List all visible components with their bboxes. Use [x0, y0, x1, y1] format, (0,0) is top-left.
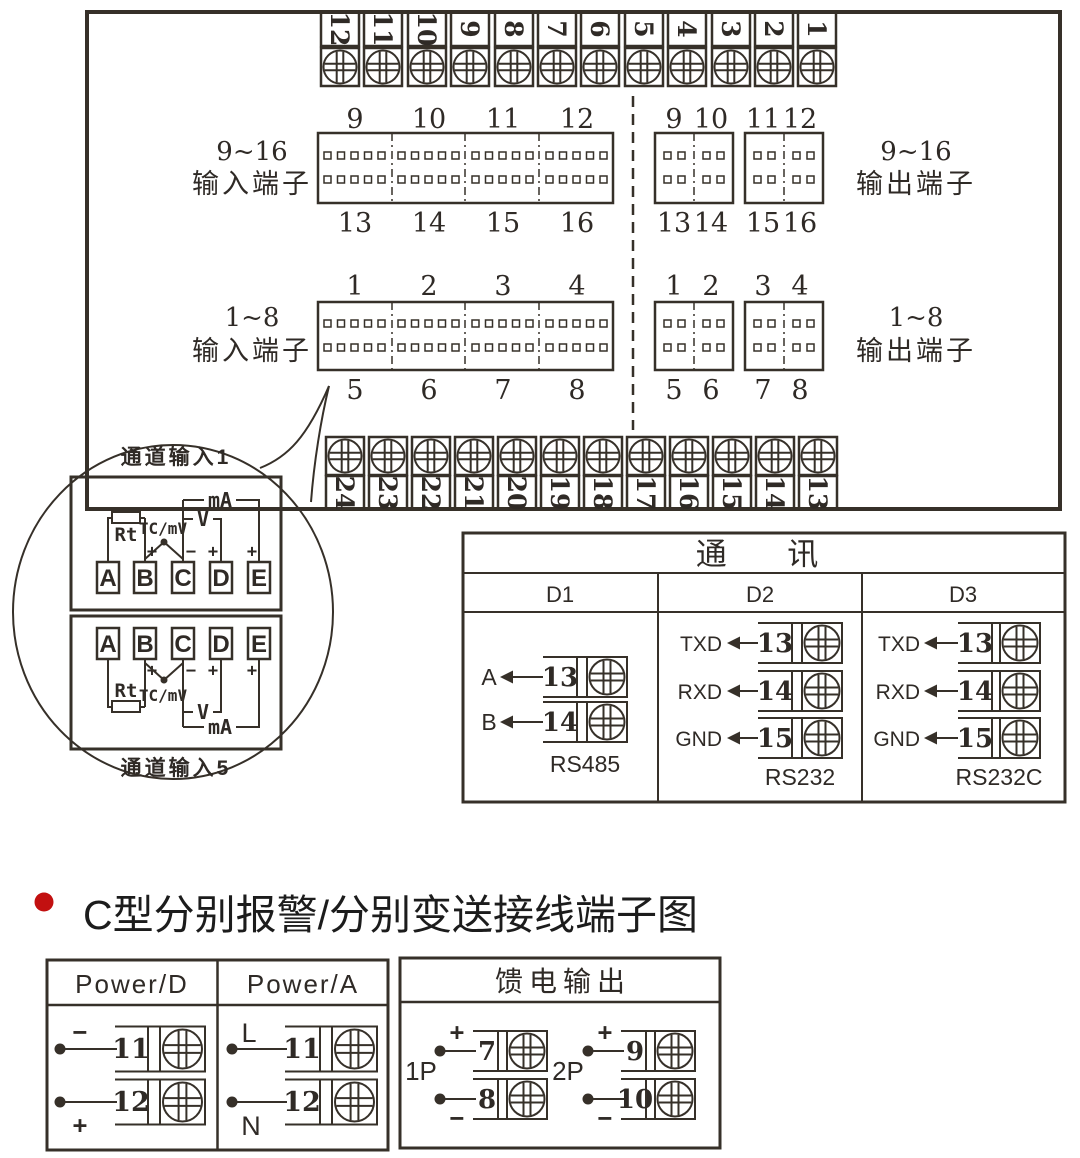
left-arrow-icon [500, 671, 513, 684]
screw-box [802, 671, 842, 711]
left-arrow-icon [727, 685, 740, 698]
signal-label: GND [675, 728, 722, 751]
screw-terminal: 9 [451, 12, 489, 86]
screw-head-icon [163, 1083, 202, 1122]
column-header: D2 [746, 582, 774, 607]
terminal-number: 8 [499, 20, 528, 37]
screw-head-icon [715, 51, 748, 84]
terminal-number: 18 [588, 476, 617, 511]
screw-head-icon [324, 51, 357, 84]
polarity-sign: + [208, 661, 218, 681]
wiring-label: mA [208, 715, 232, 739]
power-column-a: L 11 N 12 [227, 1018, 378, 1141]
screw-head-icon [805, 626, 840, 661]
screw-head-icon [1003, 674, 1038, 709]
screw-terminal: 8 [495, 12, 533, 86]
block-label-type: 输入端子 [192, 336, 312, 366]
power-row: + 12 [55, 1080, 206, 1140]
block-number: 11 [746, 104, 780, 135]
terminal-number: 2 [759, 20, 788, 37]
wiring-diagram: 12 11 10 9 8 7 6 5 4 3 2 1 9~16 输入端子 9~1… [0, 0, 1080, 1158]
channel-title: 通道输入1 [121, 445, 232, 469]
power-row: L 11 [227, 1018, 378, 1072]
terminal-number: 16 [674, 476, 703, 511]
terminal-letter: A [99, 631, 116, 658]
comm-column-d3: TXD 13 RXD 14 GND 15 [873, 623, 1042, 790]
terminal-number: 5 [629, 20, 658, 37]
polarity-sign: + [247, 542, 257, 562]
screw-head-icon [335, 1030, 374, 1069]
screw-box [160, 1080, 205, 1125]
block-label-range: 9~16 [880, 137, 951, 167]
screw-head-icon [458, 440, 491, 473]
signal-label: TXD [878, 633, 920, 656]
screw-head-icon [758, 51, 791, 84]
power-row: N 12 [227, 1080, 378, 1142]
screw-head-icon [630, 440, 663, 473]
comm-row: RXD 14 [678, 671, 842, 711]
block-number: 11 [486, 104, 520, 135]
terminal-number: 14 [957, 677, 993, 707]
screw-box [507, 1031, 547, 1071]
screw-box [655, 1031, 695, 1071]
terminal-number: 9 [626, 1037, 644, 1067]
table-title: 馈电输出 [495, 966, 631, 997]
comm-row: TXD 13 [878, 623, 1040, 663]
channel-title: 通道输入5 [121, 756, 232, 780]
terminal-number: 13 [803, 476, 832, 511]
screw-box [507, 1079, 547, 1119]
terminal-number: 13 [757, 629, 793, 659]
terminal-letter: E [251, 565, 267, 592]
feed-row: + 9 [583, 1018, 696, 1071]
block-number: 4 [568, 271, 585, 302]
feed-group-1p: 1P + 7 − 8 [405, 1018, 547, 1132]
comm-row: RXD 14 [876, 671, 1040, 711]
terminal-letter: E [251, 631, 267, 658]
page: 12 11 10 9 8 7 6 5 4 3 2 1 9~16 输入端子 9~1… [0, 0, 1080, 1158]
screw-head-icon [802, 440, 835, 473]
polarity-sign: − [186, 661, 196, 681]
screw-terminal: 4 [668, 12, 706, 86]
input-block-1-8: 1 2 3 4 5 6 7 8 [318, 271, 613, 406]
terminal-number: 1 [802, 20, 831, 37]
feed-group-2p: 2P + 9 − 10 [552, 1018, 695, 1132]
screw-terminal: 11 [364, 12, 402, 86]
block-number: 3 [754, 271, 771, 302]
polarity-sign: − [186, 542, 196, 562]
screw-head-icon [590, 660, 625, 695]
screw-terminal: 23 [369, 437, 407, 510]
signal-label: A [481, 664, 497, 690]
screw-terminal: 14 [756, 437, 794, 510]
terminal-number: 4 [672, 20, 701, 37]
block-number: 14 [694, 208, 728, 239]
screw-head-icon [335, 1083, 374, 1122]
screw-head-icon [716, 440, 749, 473]
block-number: 15 [746, 208, 780, 239]
screw-head-icon [658, 1082, 693, 1117]
screw-box [802, 623, 842, 663]
terminal-letter: C [174, 631, 191, 658]
screw-terminal: 15 [713, 437, 751, 510]
block-number: 12 [560, 104, 594, 135]
labels: 9~16 输入端子 9~16 输出端子 1~8 输入端子 1~8 输出端子 [192, 137, 976, 366]
power-row: − 11 [55, 1018, 206, 1072]
terminal-letter: C [174, 565, 191, 592]
screw-terminal: 10 [408, 12, 446, 86]
terminal-number: 13 [957, 629, 993, 659]
block-number: 2 [702, 271, 719, 302]
left-arrow-icon [924, 685, 937, 698]
screw-head-icon [584, 51, 617, 84]
screw-terminal: 12 [321, 12, 359, 86]
comm-row: GND 15 [873, 718, 1040, 758]
group-label: 1P [405, 1056, 437, 1086]
block-number: 3 [494, 271, 511, 302]
block-number: 8 [791, 375, 808, 406]
block-number: 5 [346, 375, 363, 406]
feed-output-table: 馈电输出 1P + 7 − 8 2P + [400, 958, 720, 1148]
resistor [112, 701, 140, 712]
terminal-number: 15 [757, 724, 793, 754]
screw-box [332, 1027, 377, 1072]
resistor [112, 512, 140, 523]
screw-head-icon [454, 51, 487, 84]
screw-box [802, 718, 842, 758]
terminal-number: 19 [545, 476, 574, 511]
terminal-number: 20 [502, 476, 531, 511]
block-number: 9 [346, 104, 363, 135]
block-label-range: 1~8 [889, 303, 944, 333]
left-arrow-icon [727, 732, 740, 745]
block-number: 14 [412, 208, 446, 239]
screw-terminal: 3 [712, 12, 750, 86]
signal-label: RXD [678, 681, 722, 704]
polarity-sign: − [598, 1104, 612, 1132]
terminal-number: 6 [585, 20, 614, 37]
screw-terminal: 6 [581, 12, 619, 86]
polarity-sign: − [73, 1018, 87, 1046]
polarity-sign: L [241, 1018, 256, 1048]
screw-head-icon [510, 1034, 545, 1069]
callout-balloon: 通道输入1 Rt TC/mV V mA + − + + A B C D E A [13, 386, 333, 780]
screw-box [1000, 671, 1040, 711]
screw-head-icon [510, 1082, 545, 1117]
polarity-sign: + [147, 661, 157, 681]
balloon-circle [13, 445, 333, 779]
terminal-number: 15 [957, 724, 993, 754]
screw-box [587, 702, 627, 742]
signal-label: RXD [876, 681, 920, 704]
terminal-number: 14 [542, 708, 578, 738]
block-label-range: 1~8 [225, 303, 280, 333]
screw-box [1000, 623, 1040, 663]
screw-terminal: 21 [455, 437, 493, 510]
left-arrow-icon [924, 732, 937, 745]
section-heading: C型分别报警/分别变送接线端子图 [35, 892, 699, 938]
junction-dot [161, 539, 168, 546]
terminal-letter: B [136, 631, 153, 658]
terminal-number: 7 [478, 1037, 496, 1067]
screw-terminal: 20 [498, 437, 536, 510]
screw-terminal: 19 [541, 437, 579, 510]
comm-row: TXD 13 [680, 623, 842, 663]
column-header: D1 [546, 582, 574, 607]
terminal-number: 13 [542, 663, 578, 693]
comm-column-d2: TXD 13 RXD 14 GND 15 [675, 623, 842, 790]
block-number: 16 [783, 208, 817, 239]
standard-label: RS232C [956, 764, 1043, 790]
block-number: 10 [412, 104, 446, 135]
terminal-number: 12 [325, 12, 354, 47]
terminal-number: 10 [412, 12, 441, 47]
block-number: 5 [665, 375, 682, 406]
screw-head-icon [541, 51, 574, 84]
terminal-number: 14 [760, 476, 789, 511]
polarity-sign: + [73, 1111, 87, 1139]
screw-terminal: 18 [584, 437, 622, 510]
screw-head-icon [411, 51, 444, 84]
channel-input-1-diagram: 通道输入1 Rt TC/mV V mA + − + + A B C D E [71, 445, 281, 610]
comm-row: A 13 [481, 657, 627, 697]
comm-row: GND 15 [675, 718, 842, 758]
block-label-range: 9~16 [216, 137, 287, 167]
terminal-letter: A [99, 565, 116, 592]
terminal-number: 11 [368, 12, 397, 47]
signal-label: TXD [680, 633, 722, 656]
screw-terminal: 16 [670, 437, 708, 510]
wiring-label: TC/mV [139, 519, 188, 538]
polarity-sign: − [450, 1104, 464, 1132]
block-number: 6 [702, 375, 719, 406]
column-header: D3 [949, 582, 977, 607]
block-number: 7 [754, 375, 771, 406]
block-number: 1 [346, 271, 363, 302]
screw-head-icon [415, 440, 448, 473]
block-number: 4 [791, 271, 808, 302]
screw-head-icon [590, 705, 625, 740]
screw-head-icon [329, 440, 362, 473]
screw-terminal: 2 [755, 12, 793, 86]
standard-label: RS232 [765, 764, 835, 790]
output-block-1-8: 1 2 3 4 5 6 7 8 [655, 271, 823, 406]
terminal-panel: 12 11 10 9 8 7 6 5 4 3 2 1 9~16 输入端子 9~1… [87, 12, 1060, 511]
power-table: Power/D Power/A − 11 + 12 L [47, 960, 388, 1150]
terminal-number: 7 [542, 20, 571, 37]
polarity-sign: N [241, 1111, 261, 1141]
screw-head-icon [544, 440, 577, 473]
block-number: 15 [486, 208, 520, 239]
screw-terminal: 22 [412, 437, 450, 510]
input-block-9-16: 9 10 11 12 13 14 15 16 [318, 104, 613, 239]
screw-head-icon [805, 721, 840, 756]
channel-input-5-diagram: A B C D E + − + + Rt TC/mV V mA 通道输入5 [71, 616, 281, 780]
terminal-number: 10 [617, 1085, 653, 1115]
screw-head-icon [587, 440, 620, 473]
polarity-sign: + [208, 542, 218, 562]
screw-head-icon [671, 51, 704, 84]
terminal-number: 23 [373, 476, 402, 511]
terminal-letter: D [212, 565, 229, 592]
block-number: 16 [560, 208, 594, 239]
terminal-number: 8 [478, 1085, 496, 1115]
terminal-number: 22 [416, 476, 445, 511]
table-title: 通 讯 [696, 537, 845, 572]
left-arrow-icon [500, 716, 513, 729]
terminal-number: 14 [757, 677, 793, 707]
output-block-9-16: 9 10 11 12 13 14 15 16 [655, 104, 823, 239]
block-number: 6 [420, 375, 437, 406]
screw-terminal: 13 [799, 437, 837, 510]
wiring-label: Rt [115, 524, 138, 546]
wiring-label: TC/mV [139, 686, 188, 705]
screw-terminal: 7 [538, 12, 576, 86]
wiring-label: Rt [115, 680, 138, 702]
block-label-type: 输出端子 [856, 169, 976, 199]
screw-head-icon [759, 440, 792, 473]
terminal-number: 17 [631, 476, 660, 511]
power-column-d: − 11 + 12 [55, 1018, 206, 1139]
bottom-terminal-strip: 24 23 22 21 20 19 18 17 16 15 14 13 [326, 437, 837, 510]
comm-table: 通 讯 D1 D2 D3 A 13 B 14 RS485 TXD [463, 533, 1065, 802]
block-number: 8 [568, 375, 585, 406]
screw-head-icon [658, 1034, 693, 1069]
screw-terminal: 5 [625, 12, 663, 86]
group-label: 2P [552, 1056, 584, 1086]
signal-label: GND [873, 728, 920, 751]
screw-head-icon [805, 674, 840, 709]
signal-label: B [481, 709, 496, 735]
terminal-number: 12 [112, 1087, 150, 1118]
screw-head-icon [801, 51, 834, 84]
screw-terminal: 24 [326, 437, 364, 510]
screw-head-icon [1003, 721, 1038, 756]
red-bullet-icon [35, 893, 54, 912]
terminal-letter: B [136, 565, 153, 592]
screw-head-icon [498, 51, 531, 84]
block-number: 13 [338, 208, 372, 239]
block-number: 2 [420, 271, 437, 302]
terminal-number: 21 [459, 476, 488, 511]
feed-row: − 8 [435, 1079, 548, 1132]
block-number: 10 [694, 104, 728, 135]
block-number: 13 [657, 208, 691, 239]
block-number: 9 [665, 104, 682, 135]
comm-row: B 14 [481, 702, 627, 742]
screw-box [332, 1080, 377, 1125]
comm-column-d1: A 13 B 14 RS485 [481, 657, 627, 777]
polarity-sign: + [247, 661, 257, 681]
block-number: 12 [783, 104, 817, 135]
polarity-sign: + [598, 1018, 612, 1046]
screw-box [160, 1027, 205, 1072]
block-label-type: 输入端子 [192, 169, 312, 199]
screw-head-icon [367, 51, 400, 84]
screw-box [587, 657, 627, 697]
heading-text: C型分别报警/分别变送接线端子图 [83, 892, 698, 938]
screw-head-icon [1003, 626, 1038, 661]
screw-head-icon [628, 51, 661, 84]
terminal-number: 15 [717, 476, 746, 511]
polarity-sign: + [450, 1018, 464, 1046]
block-number: 1 [665, 271, 682, 302]
junction-dot [161, 677, 168, 684]
left-arrow-icon [727, 637, 740, 650]
column-header: Power/D [75, 969, 189, 999]
terminal-letter: D [212, 631, 229, 658]
left-arrow-icon [924, 637, 937, 650]
feed-row: − 10 [583, 1079, 696, 1132]
column-header: Power/A [247, 969, 359, 999]
screw-terminal: 17 [627, 437, 665, 510]
screw-head-icon [673, 440, 706, 473]
polarity-sign: + [147, 542, 157, 562]
screw-box [1000, 718, 1040, 758]
top-terminal-strip: 12 11 10 9 8 7 6 5 4 3 2 1 [321, 12, 836, 86]
block-number: 7 [494, 375, 511, 406]
terminal-number: 11 [283, 1034, 321, 1065]
screw-terminal: 1 [798, 12, 836, 86]
terminal-number: 11 [112, 1034, 150, 1065]
block-label-type: 输出端子 [856, 336, 976, 366]
screw-head-icon [372, 440, 405, 473]
terminal-number: 24 [330, 476, 359, 511]
terminal-number: 12 [283, 1087, 321, 1118]
wiring-label: mA [208, 488, 232, 512]
feed-row: + 7 [435, 1018, 548, 1071]
terminal-number: 9 [455, 20, 484, 37]
standard-label: RS485 [550, 751, 620, 777]
screw-head-icon [163, 1030, 202, 1069]
terminal-number: 3 [716, 20, 745, 37]
screw-head-icon [501, 440, 534, 473]
screw-box [655, 1079, 695, 1119]
